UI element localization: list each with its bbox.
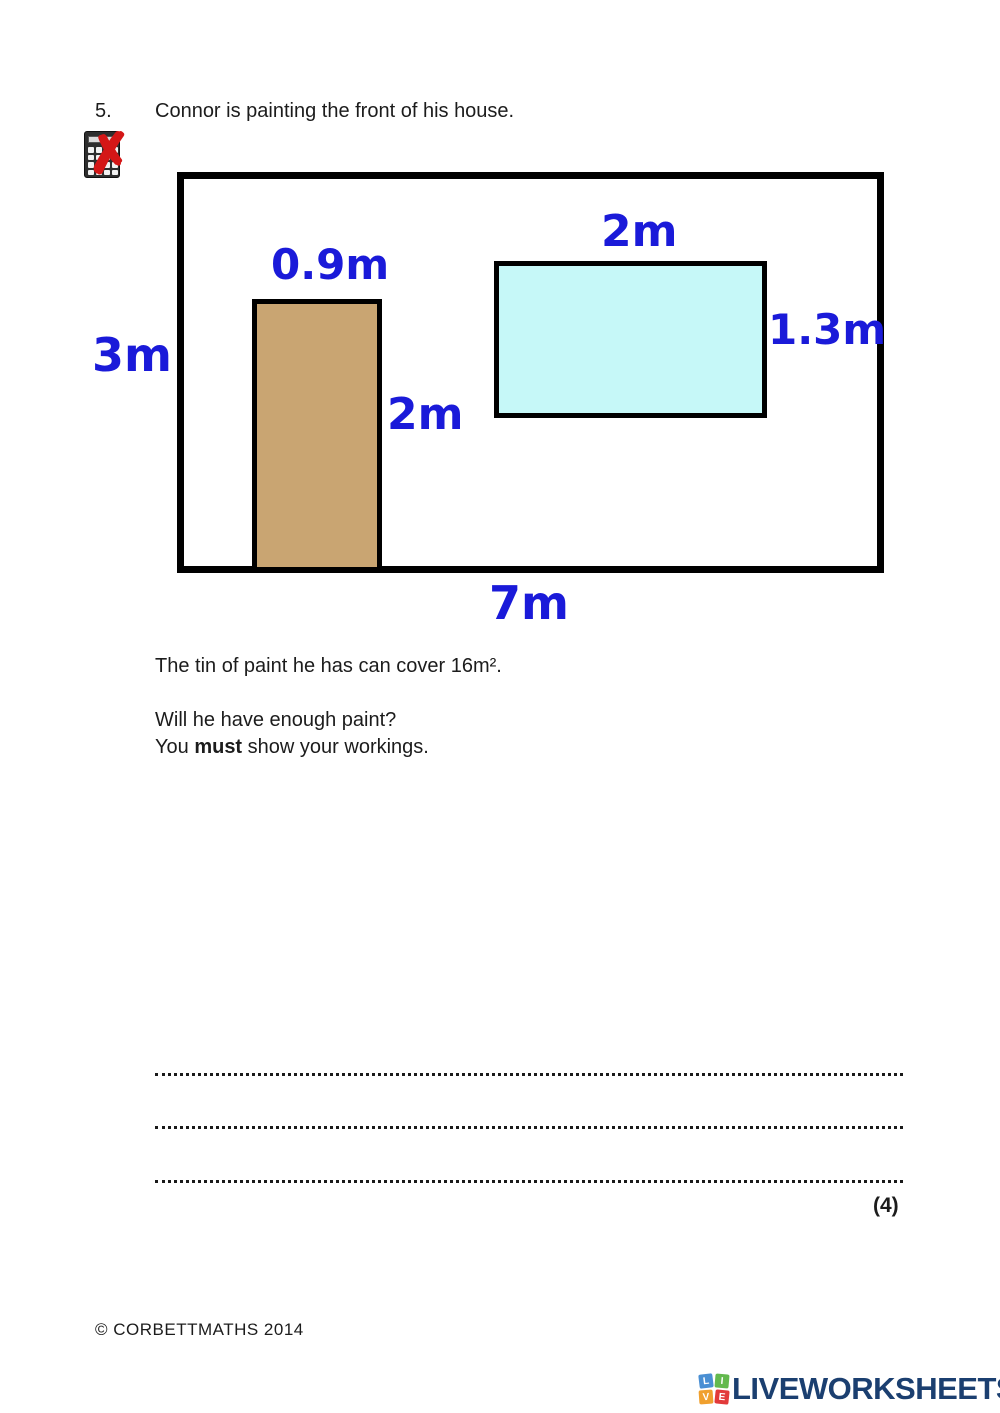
workings-suffix: show your workings. (242, 736, 429, 758)
window-width-label: 2m (601, 210, 677, 254)
question-number: 5. (95, 100, 112, 123)
logo-square-v: V (699, 1390, 714, 1405)
house-height-label: 3m (92, 332, 172, 378)
liveworksheets-logo-text: LIVEWORKSHEETS (732, 1371, 1000, 1407)
worksheet-page: 5. Connor is painting the front of his h… (0, 0, 1000, 1413)
logo-square-i: I (714, 1373, 729, 1388)
answer-line-1[interactable] (155, 1061, 903, 1076)
window-height-label: 1.3m (768, 309, 886, 351)
workings-prefix: You (155, 736, 194, 758)
show-workings-text: You must show your workings. (155, 736, 429, 759)
logo-square-e: E (714, 1389, 729, 1404)
logo-square-l: L (698, 1373, 714, 1389)
marks-badge: (4) (873, 1194, 899, 1218)
calculator-screen (88, 136, 117, 143)
answer-line-2[interactable] (155, 1114, 903, 1129)
door-rectangle (252, 299, 382, 572)
house-width-label: 7m (489, 580, 569, 626)
calculator-icon (84, 131, 120, 178)
window-rectangle (494, 261, 767, 418)
paint-coverage-text: The tin of paint he has can cover 16m². (155, 655, 502, 678)
answer-line-3[interactable] (155, 1168, 903, 1183)
calculator-keys (88, 147, 118, 175)
workings-bold: must (194, 736, 242, 758)
copyright-text: © CORBETTMATHS 2014 (95, 1320, 304, 1340)
liveworksheets-logo[interactable]: LIVE LIVEWORKSHEETS (699, 1371, 1000, 1407)
enough-paint-question: Will he have enough paint? (155, 709, 396, 732)
door-width-label: 0.9m (271, 244, 389, 286)
door-height-label: 2m (387, 393, 463, 437)
liveworksheets-logo-squares: LIVE (699, 1374, 729, 1404)
question-text: Connor is painting the front of his hous… (155, 100, 514, 123)
